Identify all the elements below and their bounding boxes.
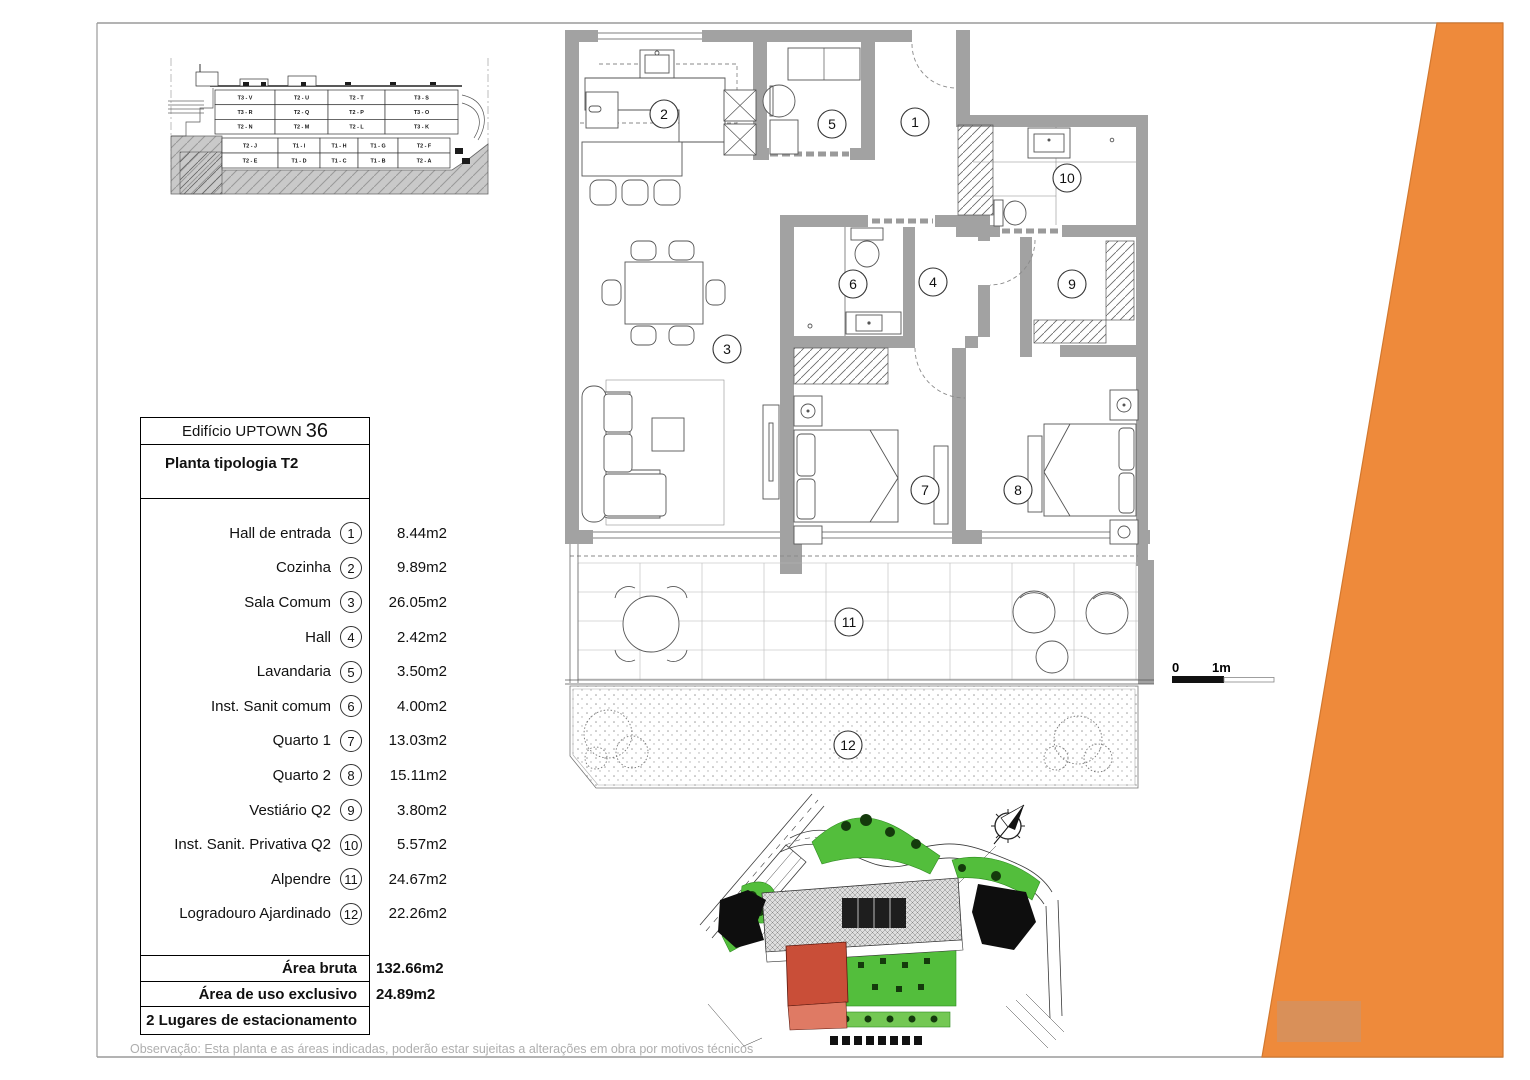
legend-row: Inst. Sanit comum64.00m2 <box>141 689 369 724</box>
side-table <box>1036 641 1068 673</box>
toilet-2 <box>1004 201 1026 225</box>
section-left-steps <box>171 88 213 136</box>
section-unit-label: T2 - T <box>349 95 364 101</box>
building-number: 36 <box>306 420 328 443</box>
legend-row: Inst. Sanit. Privativa Q2105.57m2 <box>141 827 369 862</box>
section-unit-label: T1 - G <box>370 143 385 149</box>
total-exclusive-label: Área de uso exclusivo <box>199 986 357 1003</box>
room-name: Vestiário Q2 <box>249 802 331 819</box>
laundry <box>763 48 860 154</box>
parking-label: 2 Lugares de estacionamento <box>146 1012 357 1029</box>
room-area: 4.00m2 <box>373 698 447 715</box>
room-bubble-number: 1 <box>911 114 919 130</box>
room-number-badge: 11 <box>340 868 362 890</box>
room-name: Sala Comum <box>244 594 331 611</box>
room-area: 8.44m2 <box>373 525 447 542</box>
orange-watermark-box <box>1277 1001 1361 1042</box>
section-unit-label: T3 - S <box>414 95 429 101</box>
legend-row: Logradouro Ajardinado1222.26m2 <box>141 897 369 932</box>
outdoor-table <box>623 596 679 652</box>
legend-row: Alpendre1124.67m2 <box>141 862 369 897</box>
legend-title: Edifício UPTOWN 36 <box>141 418 369 445</box>
total-gross-value: 132.66m2 <box>376 960 444 977</box>
scale-bar-open <box>1224 678 1274 683</box>
room-number-badge: 5 <box>340 661 362 683</box>
room-area: 3.50m2 <box>373 663 447 680</box>
legend-row: Quarto 2815.11m2 <box>141 758 369 793</box>
room-area: 22.26m2 <box>373 905 447 922</box>
legend-row: Hall de entrada18.44m2 <box>141 516 369 551</box>
legend-row: Cozinha29.89m2 <box>141 551 369 586</box>
legend-total-exclusive: Área de uso exclusivo 24.89m2 <box>141 982 369 1007</box>
north-arrow-icon <box>991 805 1025 844</box>
room-number-badge: 2 <box>340 557 362 579</box>
orange-band-shape <box>1262 23 1503 1057</box>
building-name: Edifício UPTOWN <box>182 423 302 440</box>
bar-stools <box>590 180 680 205</box>
dining-area <box>602 241 725 345</box>
room-area: 3.80m2 <box>373 802 447 819</box>
legend-row: Lavandaria53.50m2 <box>141 654 369 689</box>
room-area: 24.67m2 <box>373 871 447 888</box>
site-plan <box>700 794 1064 1048</box>
room-name: Quarto 2 <box>273 767 331 784</box>
section-unit-label: T2 - U <box>294 95 309 101</box>
orange-band <box>1262 23 1503 1057</box>
section-unit-label: T1 - D <box>292 158 307 164</box>
building-section: T3 - VT2 - UT2 - TT3 - ST3 - RT2 - QT2 -… <box>168 58 488 194</box>
site-highlight-unit-lower <box>788 1002 847 1030</box>
observation-note: Observação: Esta planta e as áreas indic… <box>130 1042 753 1056</box>
room-bubble-number: 5 <box>828 116 836 132</box>
room-bubble-number: 10 <box>1059 170 1075 186</box>
room-bubble-number: 7 <box>921 482 929 498</box>
living-room <box>582 380 779 525</box>
room-area: 2.42m2 <box>373 629 447 646</box>
section-unit-label: T3 - R <box>238 110 253 116</box>
legend-row: Quarto 1713.03m2 <box>141 724 369 759</box>
tv-board <box>763 405 779 499</box>
site-tree-mass-right <box>972 884 1036 950</box>
scale-zero-label: 0 <box>1172 660 1179 675</box>
section-unit-label: T3 - O <box>414 110 429 116</box>
section-unit-label: T1 - B <box>371 158 386 164</box>
section-unit-label: T2 - J <box>243 143 257 149</box>
room-number-badge: 3 <box>340 591 362 613</box>
legend-total-gross: Área bruta 132.66m2 <box>141 955 369 982</box>
room-area: 26.05m2 <box>373 594 447 611</box>
scale-bar-solid <box>1172 676 1224 683</box>
dining-table <box>625 262 703 324</box>
room-bubble-number: 9 <box>1068 276 1076 292</box>
bedroom-1 <box>794 396 948 544</box>
section-unit-label: T2 - M <box>294 125 310 131</box>
legend-rows: Hall de entrada18.44m2Cozinha29.89m2Sala… <box>141 499 369 955</box>
toilet-tank <box>851 228 883 240</box>
room-name: Inst. Sanit comum <box>211 698 331 715</box>
section-unit-label: T2 - F <box>417 143 432 149</box>
legend-row: Vestiário Q293.80m2 <box>141 793 369 828</box>
room-bubble-number: 2 <box>660 106 668 122</box>
site-highlight-unit <box>786 942 848 1006</box>
architectural-sheet: T3 - VT2 - UT2 - TT3 - ST3 - RT2 - QT2 -… <box>0 0 1530 1080</box>
room-area: 5.57m2 <box>373 836 447 853</box>
section-unit-label: T1 - C <box>332 158 347 164</box>
legend-parking: 2 Lugares de estacionamento <box>141 1007 369 1034</box>
section-right-curve <box>462 95 484 140</box>
bedroom-2 <box>1028 390 1138 544</box>
legend-row: Hall42.42m2 <box>141 620 369 655</box>
legend-row: Sala Comum326.05m2 <box>141 585 369 620</box>
section-unit-label: T2 - P <box>349 110 364 116</box>
section-roof-box <box>196 72 218 86</box>
room-number-badge: 12 <box>340 903 362 925</box>
room-name: Alpendre <box>271 871 331 888</box>
site-crosswalk <box>830 1036 922 1045</box>
room-number-badge: 1 <box>340 522 362 544</box>
kitchen-island <box>582 142 682 176</box>
room-area: 15.11m2 <box>373 767 447 784</box>
room-bubble-number: 11 <box>842 614 857 630</box>
lounge-chair <box>1013 591 1055 633</box>
section-unit-label: T2 - A <box>417 158 432 164</box>
section-unit-label: T2 - Q <box>294 110 309 116</box>
chaise <box>604 474 666 516</box>
section-grid: T3 - VT2 - UT2 - TT3 - ST3 - RT2 - QT2 -… <box>215 90 458 168</box>
room-number-badge: 10 <box>340 834 362 856</box>
room-bubble-number: 8 <box>1014 482 1022 498</box>
legend-table: Edifício UPTOWN 36 Planta tipologia T2 H… <box>140 417 370 1035</box>
floor-plan: 123456789101112 <box>565 30 1154 788</box>
room-name: Inst. Sanit. Privativa Q2 <box>174 836 331 853</box>
room-number-badge: 8 <box>340 764 362 786</box>
scale-one-label: 1m <box>1212 660 1231 675</box>
room-area: 13.03m2 <box>373 732 447 749</box>
section-unit-label: T3 - V <box>238 95 253 101</box>
room-name: Quarto 1 <box>273 732 331 749</box>
section-left-louvers <box>168 101 204 113</box>
room-number-badge: 4 <box>340 626 362 648</box>
room-number-badge: 6 <box>340 695 362 717</box>
sofa-back <box>582 386 606 522</box>
section-unit-label: T1 - I <box>293 143 306 149</box>
section-unit-label: T1 - H <box>332 143 347 149</box>
room-area: 9.89m2 <box>373 559 447 576</box>
section-unit-label: T2 - E <box>243 158 258 164</box>
room-bubble-number: 4 <box>929 274 937 290</box>
plan-type-label: Planta tipologia T2 <box>141 445 369 499</box>
room-number-badge: 7 <box>340 730 362 752</box>
room-bubbles: 123456789101112 <box>650 100 1086 759</box>
room-name: Lavandaria <box>257 663 331 680</box>
scale-bar: 0 1m <box>1172 660 1274 683</box>
room-name: Cozinha <box>276 559 331 576</box>
total-exclusive-value: 24.89m2 <box>376 986 435 1003</box>
section-unit-label: T2 - L <box>349 125 364 131</box>
toilet <box>855 241 879 267</box>
room-name: Logradouro Ajardinado <box>179 905 331 922</box>
site-courtyard-green <box>846 950 956 1006</box>
room-bubble-number: 6 <box>849 276 857 292</box>
room-name: Hall <box>305 629 331 646</box>
section-unit-label: T3 - K <box>414 125 429 131</box>
washing-machine <box>763 85 795 117</box>
total-gross-label: Área bruta <box>282 960 357 977</box>
coffee-table <box>652 418 684 451</box>
kitchen-cabinet <box>586 92 618 128</box>
lounge-chair-2 <box>1086 592 1128 634</box>
room-bubble-number: 3 <box>723 341 731 357</box>
room-number-badge: 9 <box>340 799 362 821</box>
room-name: Hall de entrada <box>229 525 331 542</box>
room-bubble-number: 12 <box>840 737 856 753</box>
section-unit-label: T2 - N <box>238 125 253 131</box>
